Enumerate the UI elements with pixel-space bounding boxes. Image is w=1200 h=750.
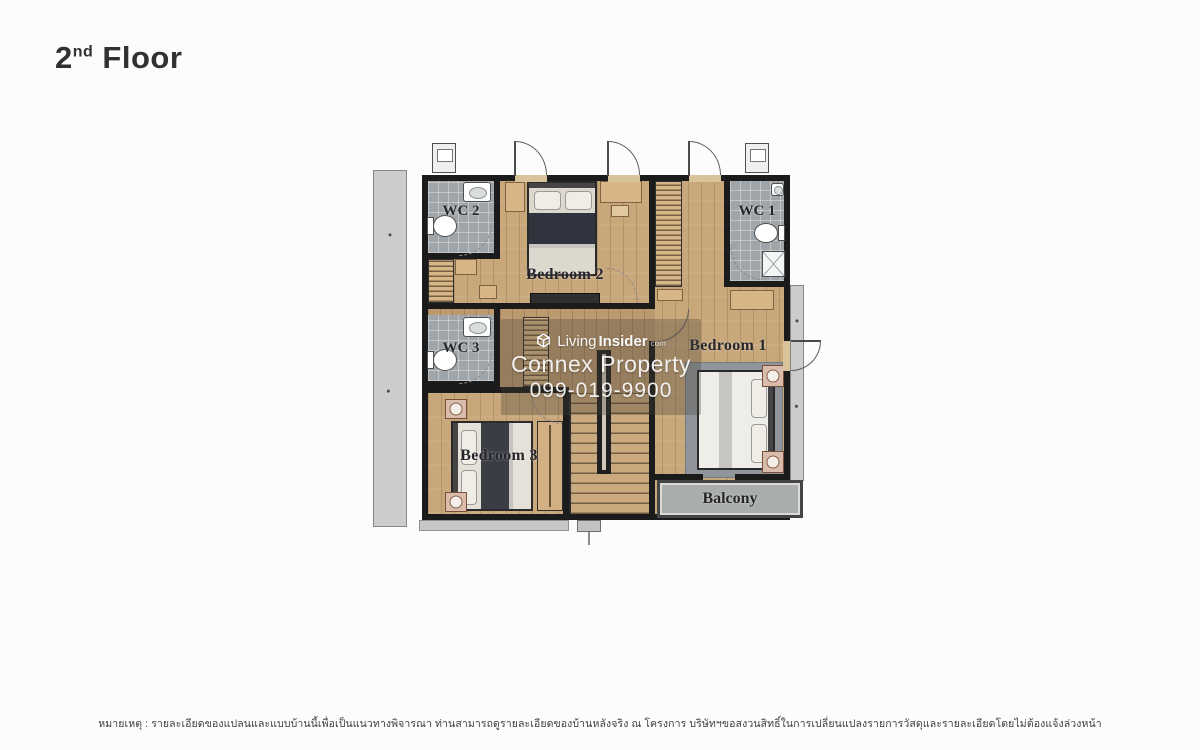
door-swing-arc [608, 141, 640, 175]
bedroom3-nightstand-lamp [445, 399, 467, 419]
wall [724, 281, 790, 287]
eave-strip-bottom [419, 520, 569, 531]
door-swing-arc [689, 141, 721, 175]
wall [649, 175, 655, 309]
page-title: 2nd Floor [55, 40, 182, 76]
wall [655, 474, 703, 480]
bedroom2-stool [479, 285, 497, 299]
door-opening [608, 175, 640, 182]
watermark-brand: Living Insider com [536, 331, 666, 350]
wc1-toilet-tank [778, 225, 785, 241]
wc1-vanity [745, 143, 769, 173]
watermark-phone: 099-019-9900 [530, 379, 673, 403]
wc1-label: WC 1 [727, 203, 787, 220]
roof-strip-right [790, 285, 804, 481]
wc2-label: WC 2 [431, 203, 491, 220]
bedroom1-desk [730, 290, 774, 310]
wall [724, 181, 730, 281]
bedroom2-label: Bedroom 2 [503, 266, 627, 284]
balcony-label: Balcony [702, 490, 757, 508]
watermark: Living Insider com Connex Property 099-0… [501, 319, 701, 415]
bedroom3-label: Bedroom 3 [437, 447, 561, 465]
wc2-sink [463, 182, 491, 202]
closet-bedroom1 [655, 181, 682, 287]
footer-note: หมายเหตุ : รายละเอียดของแปลนและแบบบ้านนี… [0, 715, 1200, 732]
livinginsider-logo-icon [536, 333, 551, 352]
wc1-sink [771, 183, 784, 196]
brand-insider: Insider [598, 333, 647, 350]
bedroom3-nightstand-lamp [445, 492, 467, 512]
brand-tld: com [651, 339, 666, 348]
title-number: 2 [55, 40, 73, 75]
door-swing-arc [791, 341, 821, 371]
closet-under-wc2 [428, 259, 454, 303]
wardrobe-bedroom3 [537, 421, 563, 511]
wc1-toilet [754, 223, 778, 243]
bedroom2-bed [527, 181, 597, 276]
wall [494, 181, 500, 259]
brand-living: Living [557, 333, 596, 350]
bottom-window-sill [577, 520, 601, 532]
bedroom1-nightstand-lamp [762, 365, 784, 387]
bottom-sill-line [588, 532, 590, 545]
watermark-company: Connex Property [511, 351, 691, 378]
wc1-shower [762, 251, 785, 277]
roof-strip-left [373, 170, 407, 527]
bedroom1-nightstand-lamp [762, 451, 784, 473]
bedroom2-desk [600, 181, 642, 203]
wall [494, 309, 500, 385]
title-word: Floor [102, 40, 182, 75]
bedroom2-nightstand [505, 182, 525, 212]
wall [422, 303, 655, 309]
wall [735, 474, 790, 480]
wc2-vanity [432, 143, 456, 173]
bedroom2-chair [611, 205, 629, 217]
balcony: Balcony [657, 480, 803, 518]
title-ordinal: nd [73, 44, 94, 61]
bedroom1-bench [657, 289, 683, 301]
wc3-label: WC 3 [429, 340, 493, 357]
wc3-sink [463, 317, 491, 337]
door-swing-arc [515, 141, 547, 175]
door-opening [689, 175, 721, 182]
hall-side-table [455, 259, 477, 275]
door-opening [515, 175, 547, 182]
